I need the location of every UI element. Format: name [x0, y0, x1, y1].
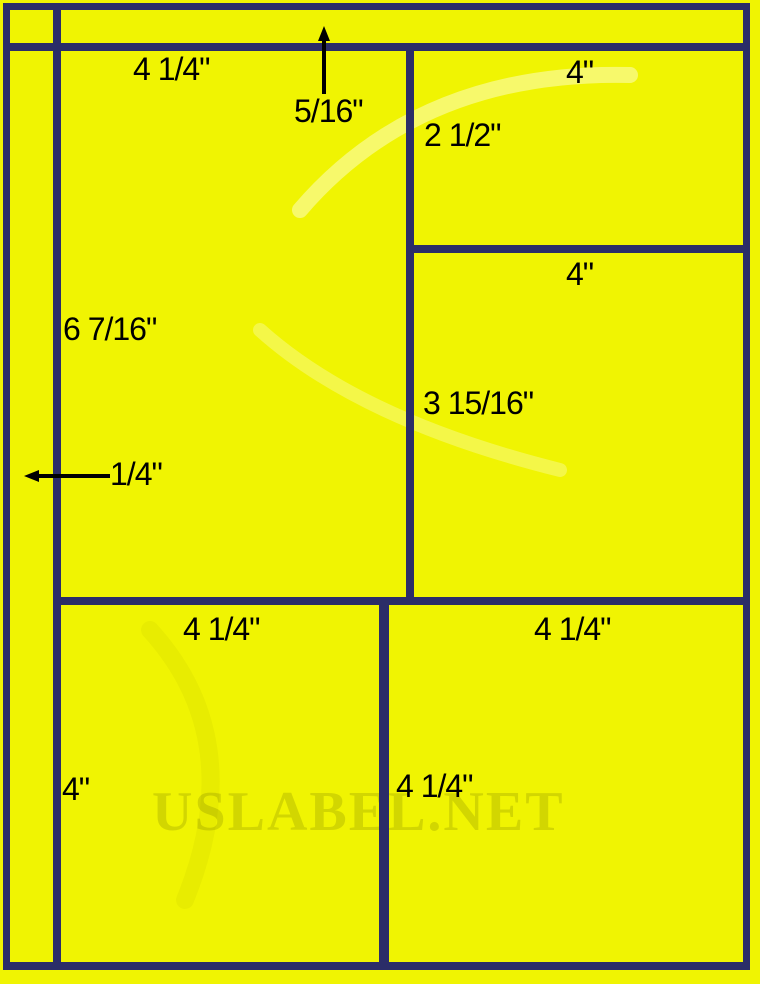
dimension-label-top-right-height: 2 1/2"	[424, 119, 501, 151]
dimension-label-bottom-left-height: 4"	[62, 773, 89, 805]
uslabel-watermark: USLABEL.NET	[152, 780, 565, 844]
cut-line-top-strip-bottom	[3, 43, 750, 51]
dimension-label-left-margin: 1/4"	[110, 458, 162, 490]
cut-line-sheet-right	[743, 3, 750, 970]
left-margin-arrow-head	[24, 470, 39, 482]
dimension-label-bottom-right-height: 4 1/4"	[396, 770, 473, 802]
dimension-label-bottom-left-width: 4 1/4"	[183, 613, 260, 645]
left-margin-arrow-shaft	[38, 474, 110, 478]
dimension-label-top-right-width: 4"	[566, 56, 593, 88]
cut-line-sheet-top	[3, 3, 750, 10]
cut-line-sheet-bottom	[3, 962, 750, 970]
cut-line-middle-vertical	[406, 43, 414, 605]
cut-line-bottom-vertical	[379, 597, 389, 970]
dimension-label-main-width: 4 1/4"	[133, 53, 210, 85]
dimension-label-top-margin: 5/16"	[294, 95, 363, 127]
cut-line-left-column-right	[53, 3, 61, 970]
cut-line-middle-horizontal	[53, 597, 750, 605]
dimension-label-main-height: 6 7/16"	[63, 313, 156, 345]
cut-line-right-divider	[406, 245, 750, 253]
dimension-label-mid-right-width: 4"	[566, 258, 593, 290]
dimension-label-mid-right-height: 3 15/16"	[423, 387, 533, 419]
label-sheet-diagram: USLABEL.NET 4 1/4" 5/16" 4" 2 1/2" 4" 3 …	[0, 0, 760, 984]
cut-line-sheet-left	[3, 3, 10, 970]
dimension-label-bottom-right-width: 4 1/4"	[534, 613, 611, 645]
top-margin-arrow-shaft	[322, 39, 326, 94]
